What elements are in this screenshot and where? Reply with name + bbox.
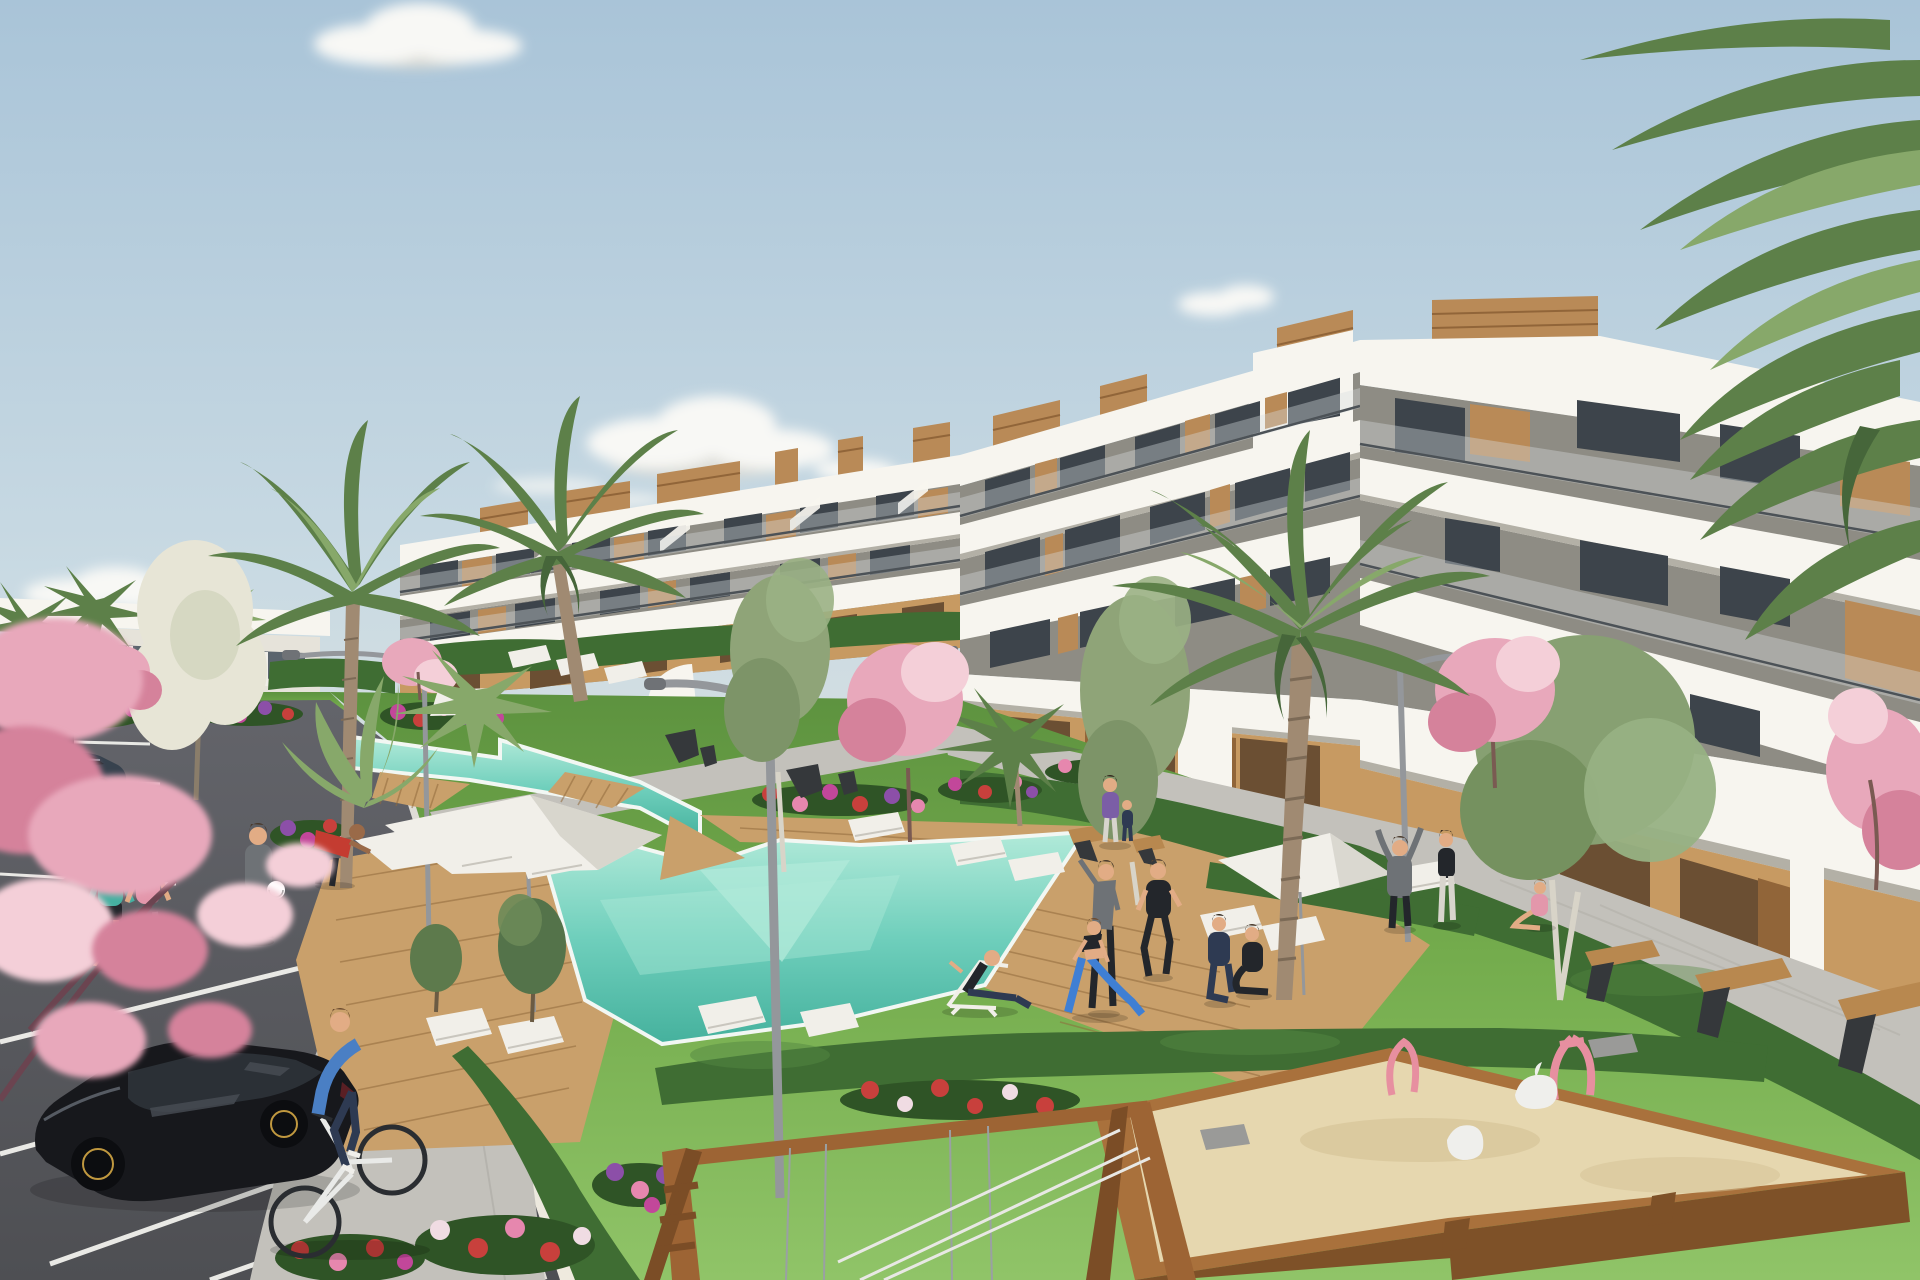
sand-shading xyxy=(1580,1157,1780,1193)
hedge-highlight xyxy=(690,1041,830,1069)
sand-shading xyxy=(1300,1118,1540,1162)
ground-arch-pier xyxy=(1790,806,1824,986)
rendered-scene xyxy=(0,0,1920,1280)
roof-wood-box xyxy=(1432,296,1598,342)
corner-bracket xyxy=(1442,1218,1470,1252)
cloud-puff xyxy=(410,29,522,63)
corner-bracket xyxy=(1648,1192,1676,1226)
flower-bed xyxy=(415,1215,595,1275)
roof-wood-boxes xyxy=(1432,296,1598,342)
hedge-highlight xyxy=(1160,1029,1340,1055)
cloud-puff xyxy=(1218,285,1274,309)
scene-canvas xyxy=(0,0,1920,1280)
